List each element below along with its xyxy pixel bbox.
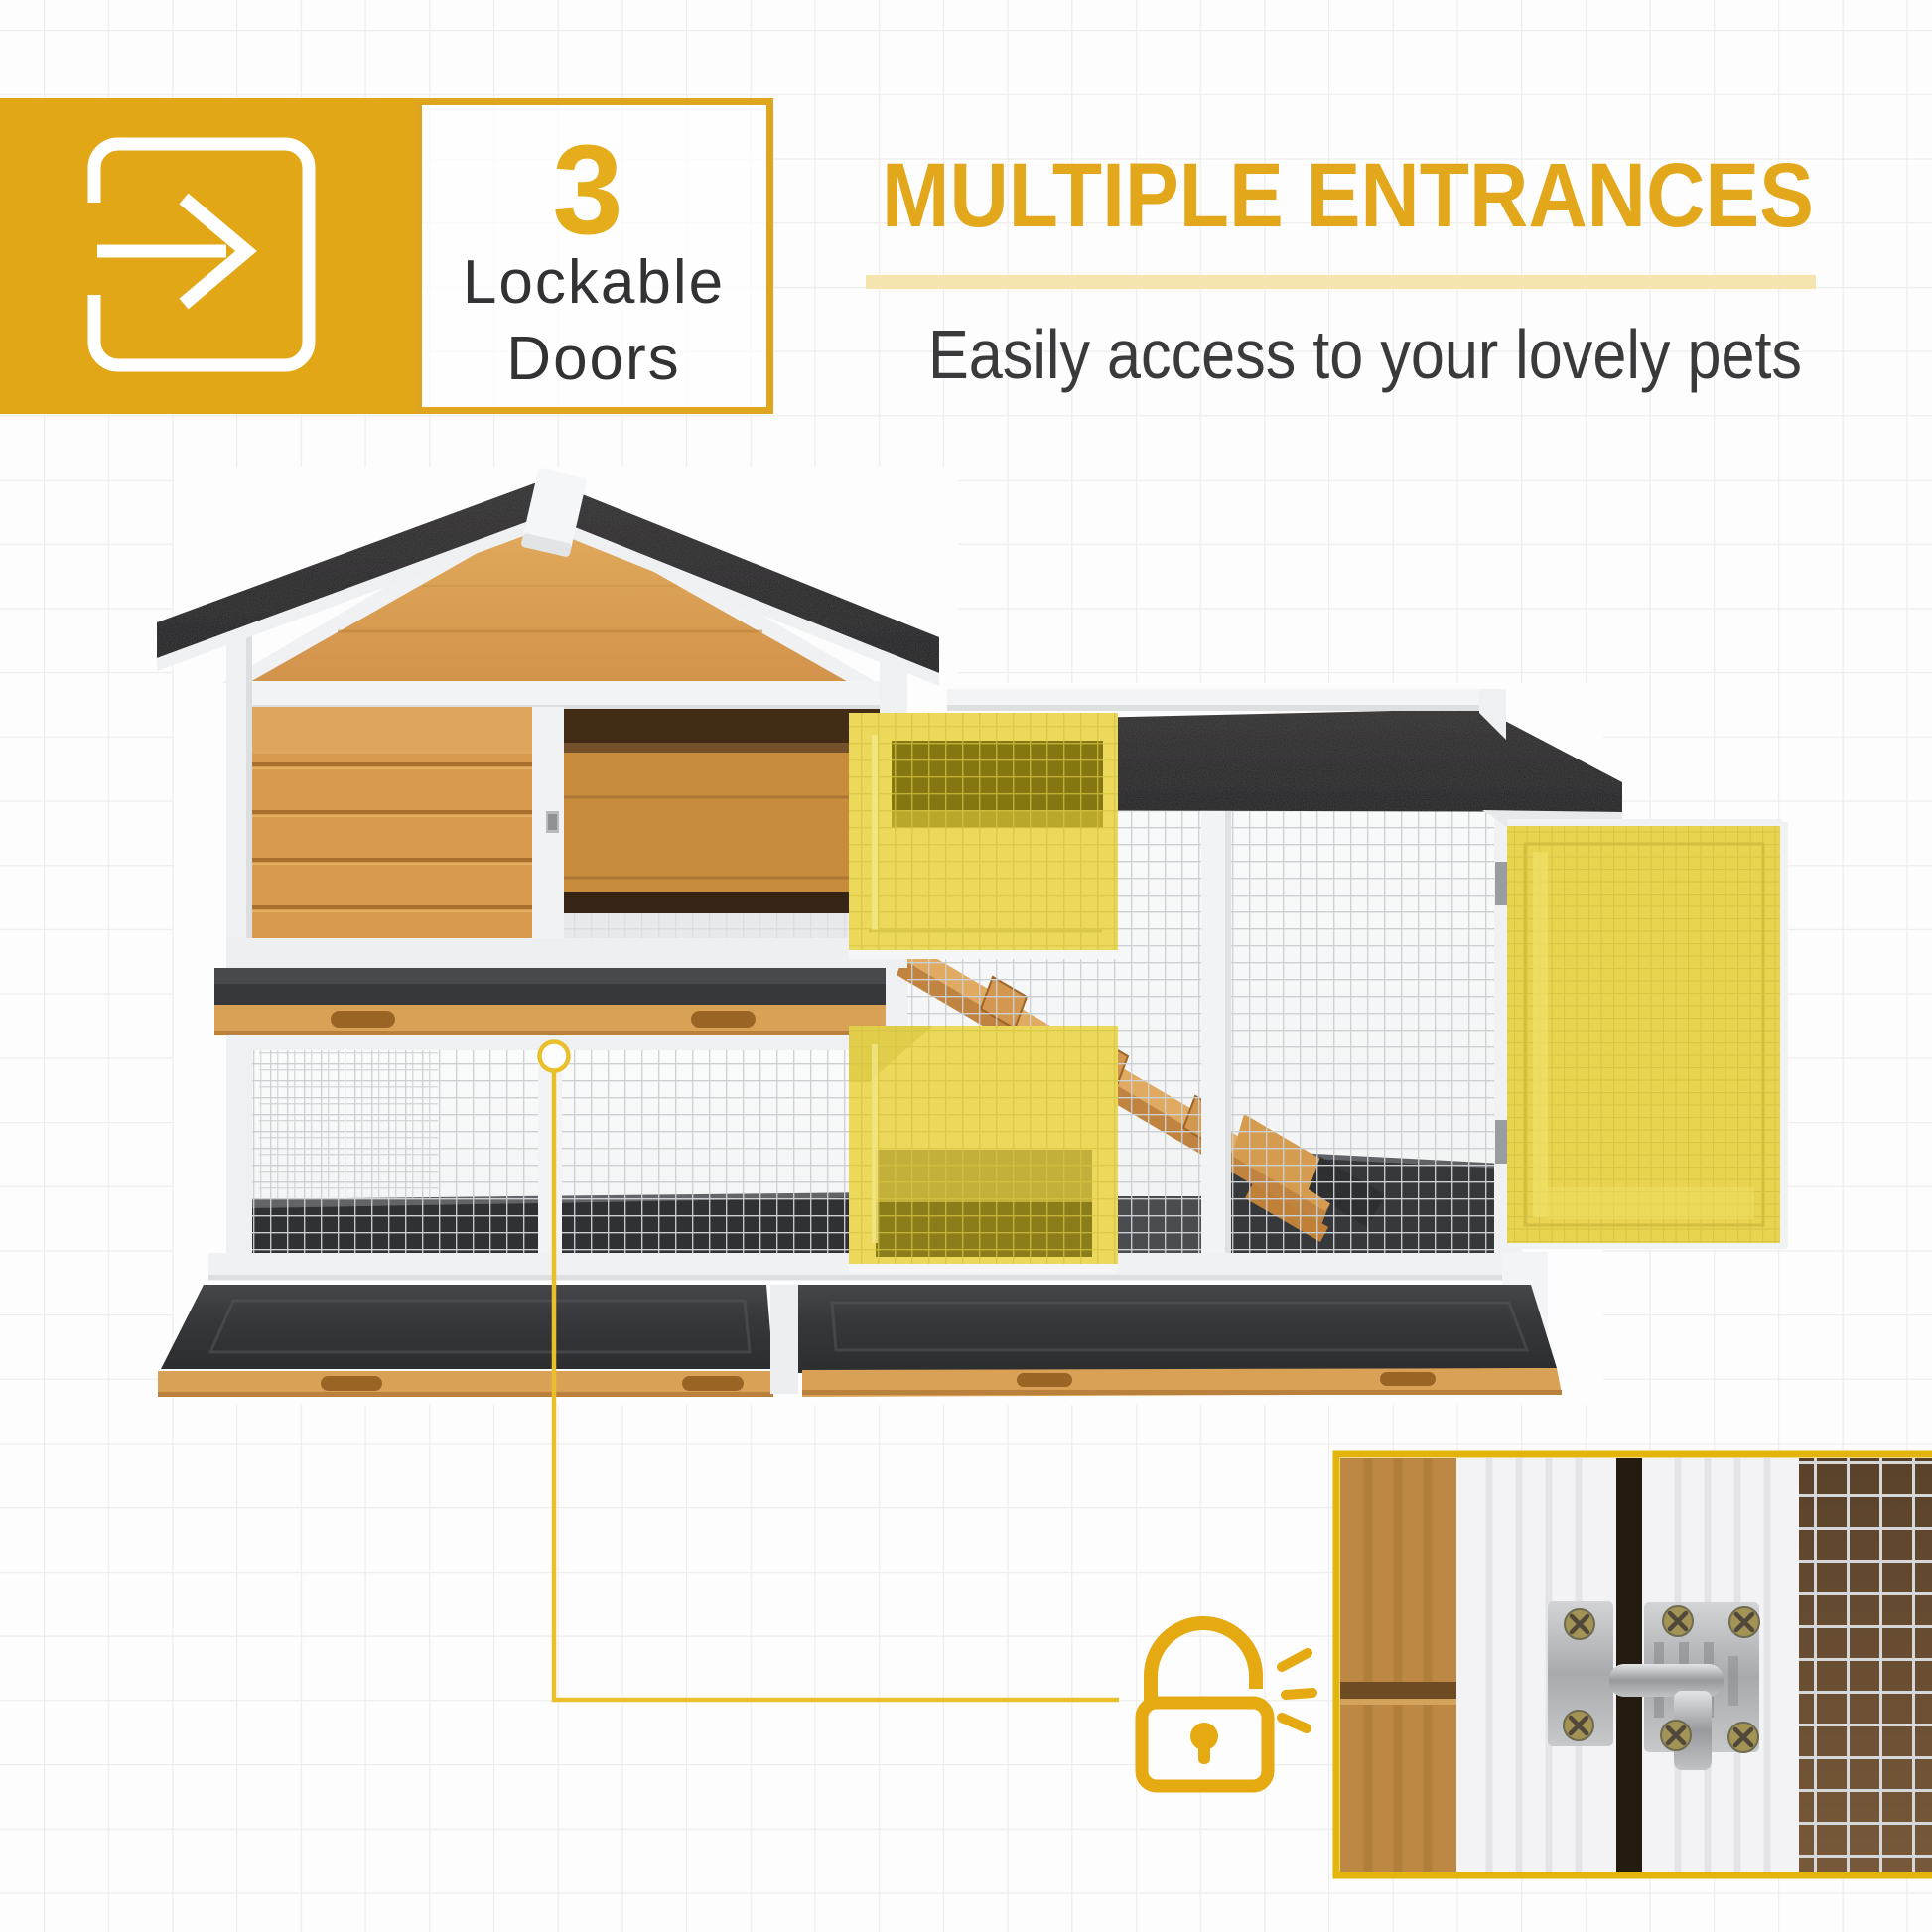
svg-text:Lockable: Lockable	[463, 248, 725, 317]
svg-text:MULTIPLE ENTRANCES: MULTIPLE ENTRANCES	[882, 145, 1814, 246]
svg-text:Easily access to your lovely p: Easily access to your lovely pets	[928, 316, 1802, 393]
svg-text:Doors: Doors	[506, 325, 680, 393]
svg-text:3: 3	[552, 119, 622, 261]
